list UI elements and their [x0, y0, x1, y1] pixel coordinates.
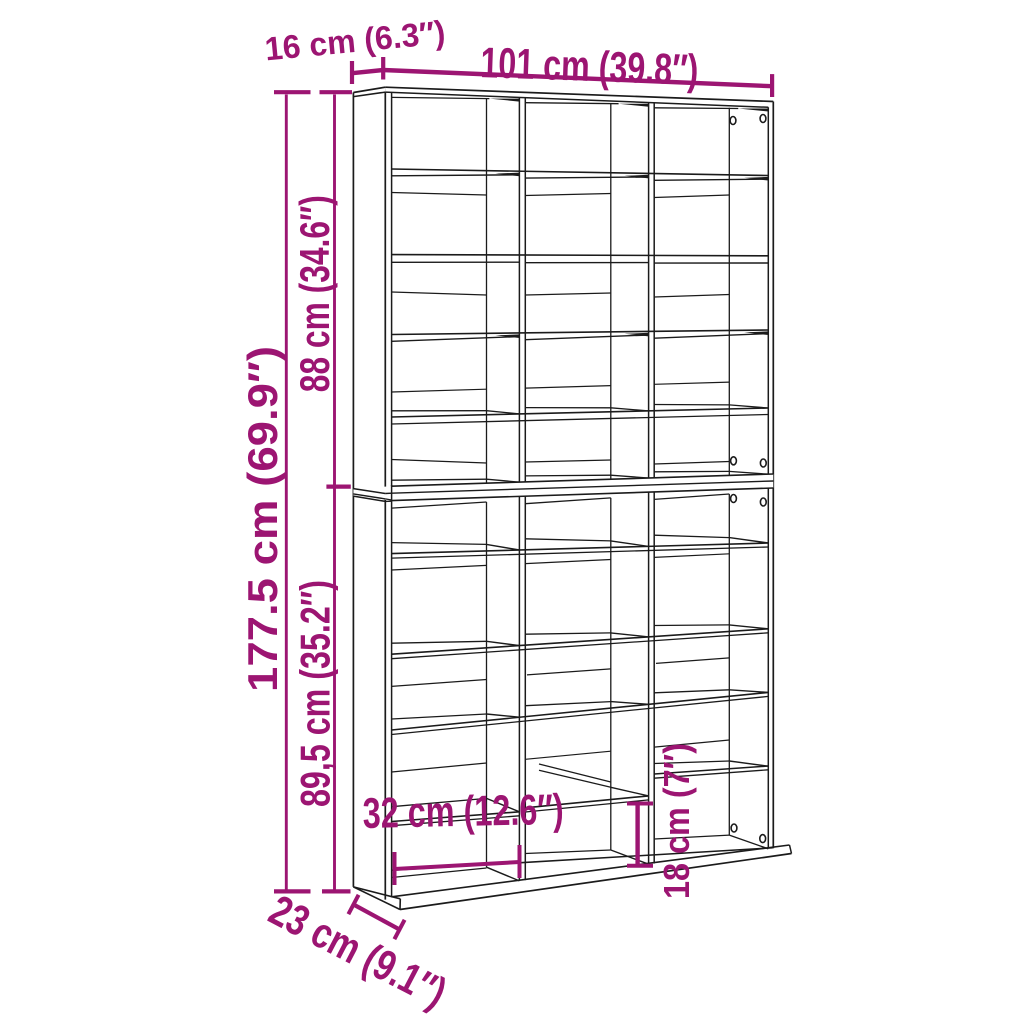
svg-text:101 cm (39.8″): 101 cm (39.8″)	[480, 39, 700, 95]
svg-text:88 cm (34.6″): 88 cm (34.6″)	[291, 195, 338, 392]
svg-text:89,5 cm (35.2″): 89,5 cm (35.2″)	[292, 580, 339, 807]
svg-text:32 cm (12.6″): 32 cm (12.6″)	[362, 786, 564, 838]
svg-text:177.5 cm (69.9″): 177.5 cm (69.9″)	[239, 346, 286, 692]
svg-text:18 cm (7″): 18 cm (7″)	[656, 743, 697, 899]
